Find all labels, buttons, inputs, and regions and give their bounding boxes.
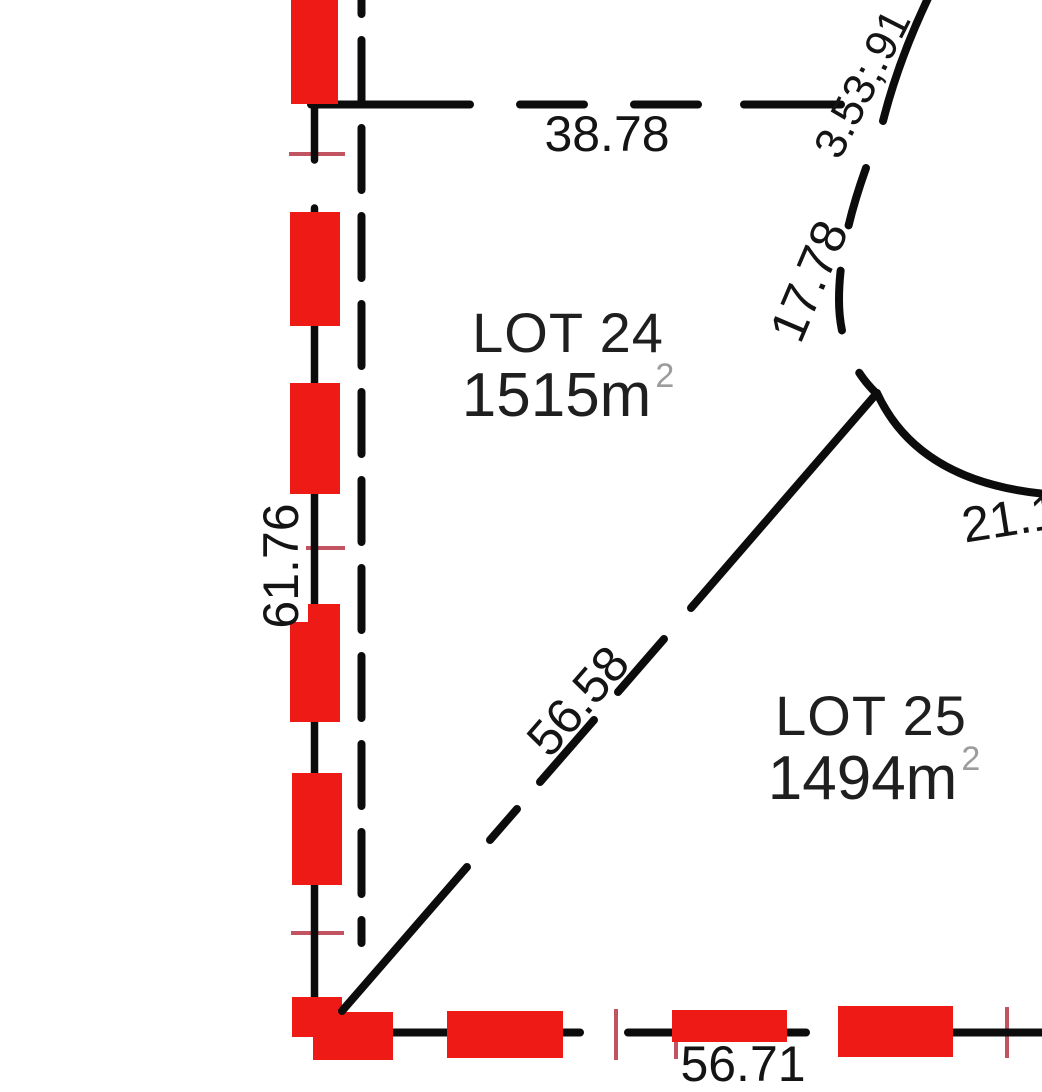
cul-de-sac-arc-dashed [839, 168, 877, 394]
lot-25-area-exponent: 2 [961, 742, 980, 776]
cadastral-plan: LOT 24 1515m 2 LOT 25 1494m 2 38.78 61.7… [0, 0, 1042, 1080]
cul-de-sac-arc-lower [877, 393, 1042, 494]
lot-24-area-exponent: 2 [655, 359, 674, 393]
lot-24-name: LOT 24 [472, 305, 664, 361]
highlight-rect [290, 212, 340, 326]
lot-25-name: LOT 25 [775, 688, 967, 744]
dimension-bottom-boundary: 56.71 [680, 1039, 805, 1089]
highlight-rect [838, 1006, 953, 1057]
lot-25-area-value: 1494m [768, 748, 958, 810]
lot-24-area-value: 1515m [462, 365, 652, 427]
highlight-rect [291, 0, 338, 104]
lot-25-area: 1494m 2 [768, 748, 981, 810]
survey-plan-canvas: { "canvas": {"width": 1042, "height": 10… [0, 0, 1042, 1080]
lot-24-area: 1515m 2 [462, 365, 675, 427]
survey-ticks [289, 154, 1007, 1060]
dimension-left-boundary: 61.76 [256, 503, 306, 628]
boundary-lines [311, 0, 1042, 1033]
plan-linework [0, 0, 1042, 1080]
highlight-rect [292, 773, 342, 885]
highlight-rect-corner [313, 1012, 393, 1060]
highlight-rect [290, 622, 340, 722]
highlight-rect [290, 383, 340, 494]
dimension-top-boundary: 38.78 [544, 109, 669, 159]
highlight-rect [447, 1011, 563, 1058]
